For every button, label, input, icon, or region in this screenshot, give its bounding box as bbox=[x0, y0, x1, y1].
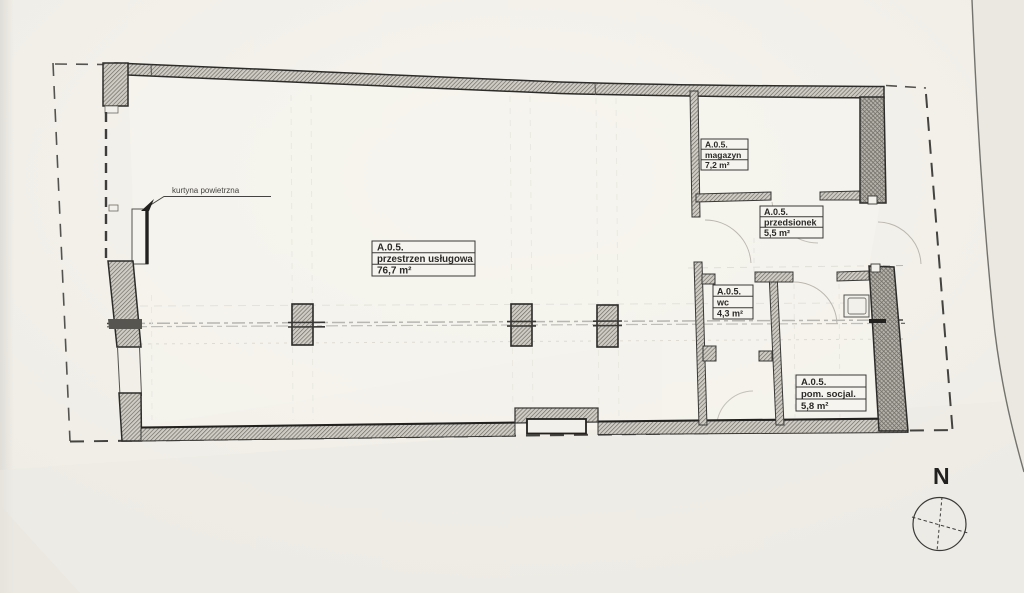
svg-text:5,5 m²: 5,5 m² bbox=[764, 228, 790, 238]
svg-text:kurtyna powietrzna: kurtyna powietrzna bbox=[172, 186, 240, 195]
svg-text:7,2 m²: 7,2 m² bbox=[705, 160, 730, 170]
svg-text:A.0.5.: A.0.5. bbox=[801, 377, 826, 388]
svg-text:5,8 m²: 5,8 m² bbox=[801, 401, 828, 412]
svg-text:magazyn: magazyn bbox=[705, 150, 741, 160]
svg-text:A.0.5.: A.0.5. bbox=[764, 207, 788, 217]
svg-text:76,7 m²: 76,7 m² bbox=[377, 266, 412, 277]
svg-text:przedsionek: przedsionek bbox=[764, 217, 818, 227]
svg-text:N: N bbox=[933, 463, 950, 489]
svg-text:4,3 m²: 4,3 m² bbox=[717, 309, 743, 319]
svg-text:A.0.5.: A.0.5. bbox=[717, 286, 741, 296]
svg-text:A.0.5.: A.0.5. bbox=[377, 243, 404, 254]
svg-text:wc: wc bbox=[716, 297, 729, 307]
svg-text:A.0.5.: A.0.5. bbox=[705, 140, 728, 150]
svg-text:przestrzen usługowa: przestrzen usługowa bbox=[377, 254, 473, 265]
svg-text:pom. socjal.: pom. socjal. bbox=[801, 389, 856, 400]
